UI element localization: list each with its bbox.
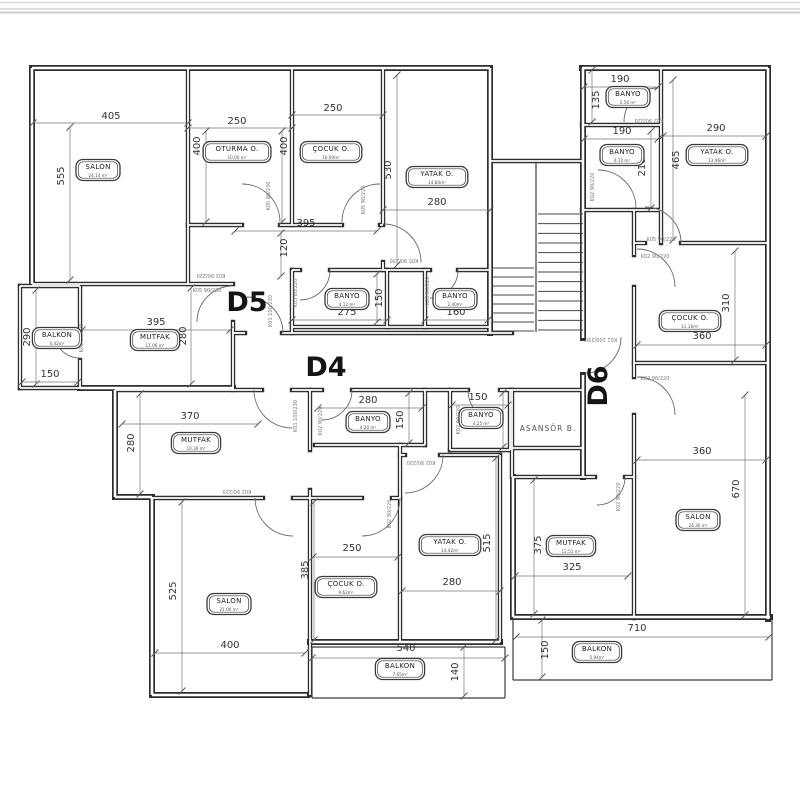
dimension-label: 400 (220, 640, 239, 651)
dimension-label: 360 (692, 331, 711, 342)
room-name: YATAK O. (432, 538, 466, 546)
dimension-label: 530 (383, 160, 394, 179)
room-name: BALKON (42, 331, 72, 339)
floor-plan-canvas: 4055552504004002505302803951202751501603… (0, 0, 800, 792)
dimension: 120 (278, 230, 291, 280)
room-badge: SALON24.30 m² (676, 510, 720, 531)
dimension: 150 (374, 271, 386, 326)
room-badge: YATAK O.13.96m² (686, 145, 748, 166)
room-name: BANYO (468, 411, 494, 419)
unit-label-d5: D5 (226, 287, 267, 318)
room-area: 4.20 m² (360, 425, 377, 430)
room-badge: OTURMA O.10.00 m² (203, 142, 271, 163)
dimension-label: 555 (56, 166, 67, 185)
door-size-label: K02 90/220 (223, 488, 252, 494)
dimension: 135 (589, 67, 603, 126)
room-badge: BALKON5.94m² (572, 642, 621, 663)
room-name: OTURMA O. (216, 145, 259, 153)
room-badge: BANYO4.20 m² (346, 412, 390, 433)
room-area: 9.62m² (338, 590, 353, 595)
floor-plan-sheet: 4055552504004002505302803951202751501603… (0, 0, 800, 792)
room-name: BANYO (442, 292, 468, 300)
room-area: 11.16m² (681, 324, 699, 329)
room-area: 2.40m² (447, 302, 462, 307)
door-size-label: K02 90/220 (197, 272, 226, 278)
dimension: 280 (178, 285, 195, 388)
room-badge: BALKON7.65m² (375, 659, 424, 680)
dimension-label: 280 (126, 433, 137, 452)
room-name: BANYO (355, 415, 381, 423)
dimension-label: 400 (192, 136, 203, 155)
dimension-label: 325 (562, 562, 581, 573)
door-size-label: K02 90/220 (387, 500, 393, 529)
dimension-label: 310 (721, 293, 732, 312)
dimension-label: 395 (296, 218, 315, 229)
room-name: MUTFAK (181, 436, 211, 444)
dimension-label: 140 (450, 662, 461, 681)
room-name: BANYO (334, 292, 360, 300)
dimension: 555 (56, 124, 74, 284)
dimension-label: 670 (731, 479, 742, 498)
room-badge: SALON21.00 m² (207, 594, 251, 615)
room-badge: BANYO2.56 m² (606, 87, 650, 108)
door-size-label: K02 90/220 (407, 459, 436, 465)
door-size-label: K05 80/230 (266, 182, 272, 211)
room-area: 12.51 m² (561, 549, 580, 554)
dimension-label: 250 (342, 543, 361, 554)
room-name: BALKON (582, 645, 612, 653)
dimension-label: 540 (396, 643, 415, 654)
room-name: SALON (85, 163, 110, 171)
dimension: 375 (531, 477, 545, 618)
door-size-label: K02 90/220 (318, 407, 324, 436)
room-area: 4.42m² (49, 341, 64, 346)
door-size-label: K02 90/220 (616, 483, 622, 512)
room-area: 21.00 m² (219, 607, 238, 612)
room-name: YATAK O. (699, 148, 733, 156)
room-area: 4.10 m² (614, 158, 631, 163)
door-arc (255, 498, 293, 536)
unit-label-d6: D6 (583, 365, 614, 406)
dimension-label: 280 (427, 197, 446, 208)
room-name: BALKON (385, 662, 415, 670)
dimension-label: 290 (706, 123, 725, 134)
dimension: 400 (279, 128, 291, 226)
dimension: 190 (581, 126, 662, 143)
dimension-label: 405 (101, 111, 120, 122)
room-name: MUTFAK (556, 539, 586, 547)
dimension: 395 (232, 218, 381, 235)
room-area: 4.12 m² (339, 302, 356, 307)
door-arc (242, 184, 280, 222)
door-arc (362, 498, 400, 536)
dimension-label: 280 (358, 395, 377, 406)
dimension-label: 190 (610, 74, 629, 85)
dimension: 150 (19, 369, 82, 386)
room-badge: ÇOCUK O.10.00m² (300, 142, 362, 163)
dimension: 360 (634, 446, 770, 464)
dimension-label: 515 (482, 533, 493, 552)
dimension: 525 (168, 499, 186, 695)
room-area: 2.56 m² (620, 100, 637, 105)
dimension: 400 (152, 640, 309, 657)
room-badge: BANYO4.25 m² (459, 408, 503, 429)
room-badge: BANYO4.12 m² (325, 289, 369, 310)
dimension-label: 150 (40, 369, 59, 380)
room-area: 10.36 m² (186, 446, 205, 451)
room-name: ÇOCUK O. (327, 580, 364, 588)
dimension-label: 385 (300, 560, 311, 579)
door-arc (383, 224, 421, 262)
dimension-label: 135 (591, 90, 602, 109)
dimension: 530 (383, 72, 401, 269)
door-arc (637, 377, 675, 415)
door-size-label: K02 90/220 (590, 173, 596, 202)
room-area: 5.94m² (589, 655, 604, 660)
dimension-label: 190 (612, 126, 631, 137)
room-area: 13.96m² (708, 158, 726, 163)
door-arcs (54, 88, 681, 536)
dimension: 140 (450, 644, 468, 700)
dimension-label: 150 (374, 288, 385, 307)
room-area: 7.65m² (392, 672, 407, 677)
door-size-label: K02 90/220 (641, 254, 670, 260)
dimension-label: 370 (180, 411, 199, 422)
room-area: 14.84m² (428, 180, 446, 185)
door-size-label: K01 100/230 (268, 295, 274, 327)
unit-label-d4: D4 (305, 352, 346, 383)
room-name: BANYO (609, 148, 635, 156)
dimension-label: 150 (468, 392, 487, 403)
room-badge: BANYO2.40m² (433, 289, 477, 310)
dimension: 670 (731, 392, 749, 619)
dimension: 310 (721, 248, 739, 364)
dimension-label: 375 (533, 535, 544, 554)
room-name: SALON (685, 513, 710, 521)
dimension: 360 (634, 331, 770, 349)
room-name: ÇOCUK O. (671, 314, 708, 322)
dimension-label: 150 (395, 410, 406, 429)
staircase (492, 214, 583, 331)
door-size-label: K02 90/220 (635, 117, 664, 123)
room-name: SALON (216, 597, 241, 605)
dimension: 290 (660, 123, 770, 140)
room-area: 14.42m² (441, 548, 459, 553)
room-badge: BANYO4.10 m² (600, 145, 644, 166)
dimension-label: 120 (279, 238, 290, 257)
dimension: 280 (126, 391, 144, 498)
room-badge: MUTFAK10.36 m² (171, 433, 220, 454)
dimension: 150 (539, 617, 552, 681)
dimension: 405 (30, 111, 192, 127)
door-arc (598, 170, 636, 208)
dimension-label: 525 (168, 581, 179, 600)
room-badge: SALON24.14 m² (76, 160, 120, 181)
dimension: 150 (395, 390, 413, 447)
dimension-label: 250 (227, 116, 246, 127)
room-area: 10.00 m² (227, 155, 246, 160)
room-badge: BALKON4.42m² (32, 328, 81, 349)
door-size-label: K05 90/220 (361, 186, 367, 215)
door-size-label: K01 100/230 (293, 400, 299, 432)
elevator-label: ASANSÖR B. (520, 424, 577, 433)
dimension: 210 (637, 128, 655, 212)
dimension: 250 (289, 103, 387, 119)
room-area: 4.25 m² (473, 421, 490, 426)
dimension-label: 150 (540, 640, 551, 659)
room-name: MUTFAK (140, 333, 170, 341)
dimension-label: 400 (279, 136, 290, 155)
dimension: 515 (482, 455, 500, 644)
room-badge: MUTFAK11.06 m² (130, 330, 179, 351)
room-badge: YATAK O.14.84m² (406, 167, 468, 188)
dimension-label: 465 (671, 150, 682, 169)
door-size-label: K03 80/220 (293, 279, 299, 308)
room-area: 24.30 m² (688, 523, 707, 528)
sheet-top-edge (0, 3, 800, 13)
door-size-label: K05 90/230 (193, 288, 222, 294)
dimension: 325 (512, 562, 632, 580)
walls (20, 68, 772, 698)
dimension-label: 360 (692, 446, 711, 457)
dimension-label: 395 (146, 317, 165, 328)
room-badge: ÇOCUK O.11.16m² (659, 311, 721, 332)
room-area: 24.14 m² (88, 173, 107, 178)
dimension-label: 710 (627, 623, 646, 634)
room-badge: MUTFAK12.51 m² (546, 536, 595, 557)
dimension-label: 250 (323, 103, 342, 114)
dimension-label: 290 (22, 327, 33, 346)
door-size-label: K05 90/230 (390, 257, 419, 263)
door-size-label: K02 90/220 (641, 376, 670, 382)
room-area: 10.00m² (322, 155, 340, 160)
dimension: 250 (185, 116, 296, 132)
room-badge: ÇOCUK O.9.62m² (315, 577, 377, 598)
room-badge: YATAK O.14.42m² (419, 535, 481, 556)
room-name: BANYO (615, 90, 641, 98)
door-size-label: K05 90/220 (647, 237, 676, 243)
dimension: 710 (513, 623, 773, 641)
dimension: 250 (310, 543, 402, 561)
door-size-label: K03 80/220 (425, 277, 431, 306)
dimension-label: 280 (442, 577, 461, 588)
door-size-label: K01 100/230 (585, 336, 617, 342)
room-name: ÇOCUK O. (312, 145, 349, 153)
dimension: 280 (399, 577, 504, 595)
dimension: 280 (380, 197, 494, 214)
room-name: YATAK O. (419, 170, 453, 178)
room-area: 11.06 m² (145, 343, 164, 348)
